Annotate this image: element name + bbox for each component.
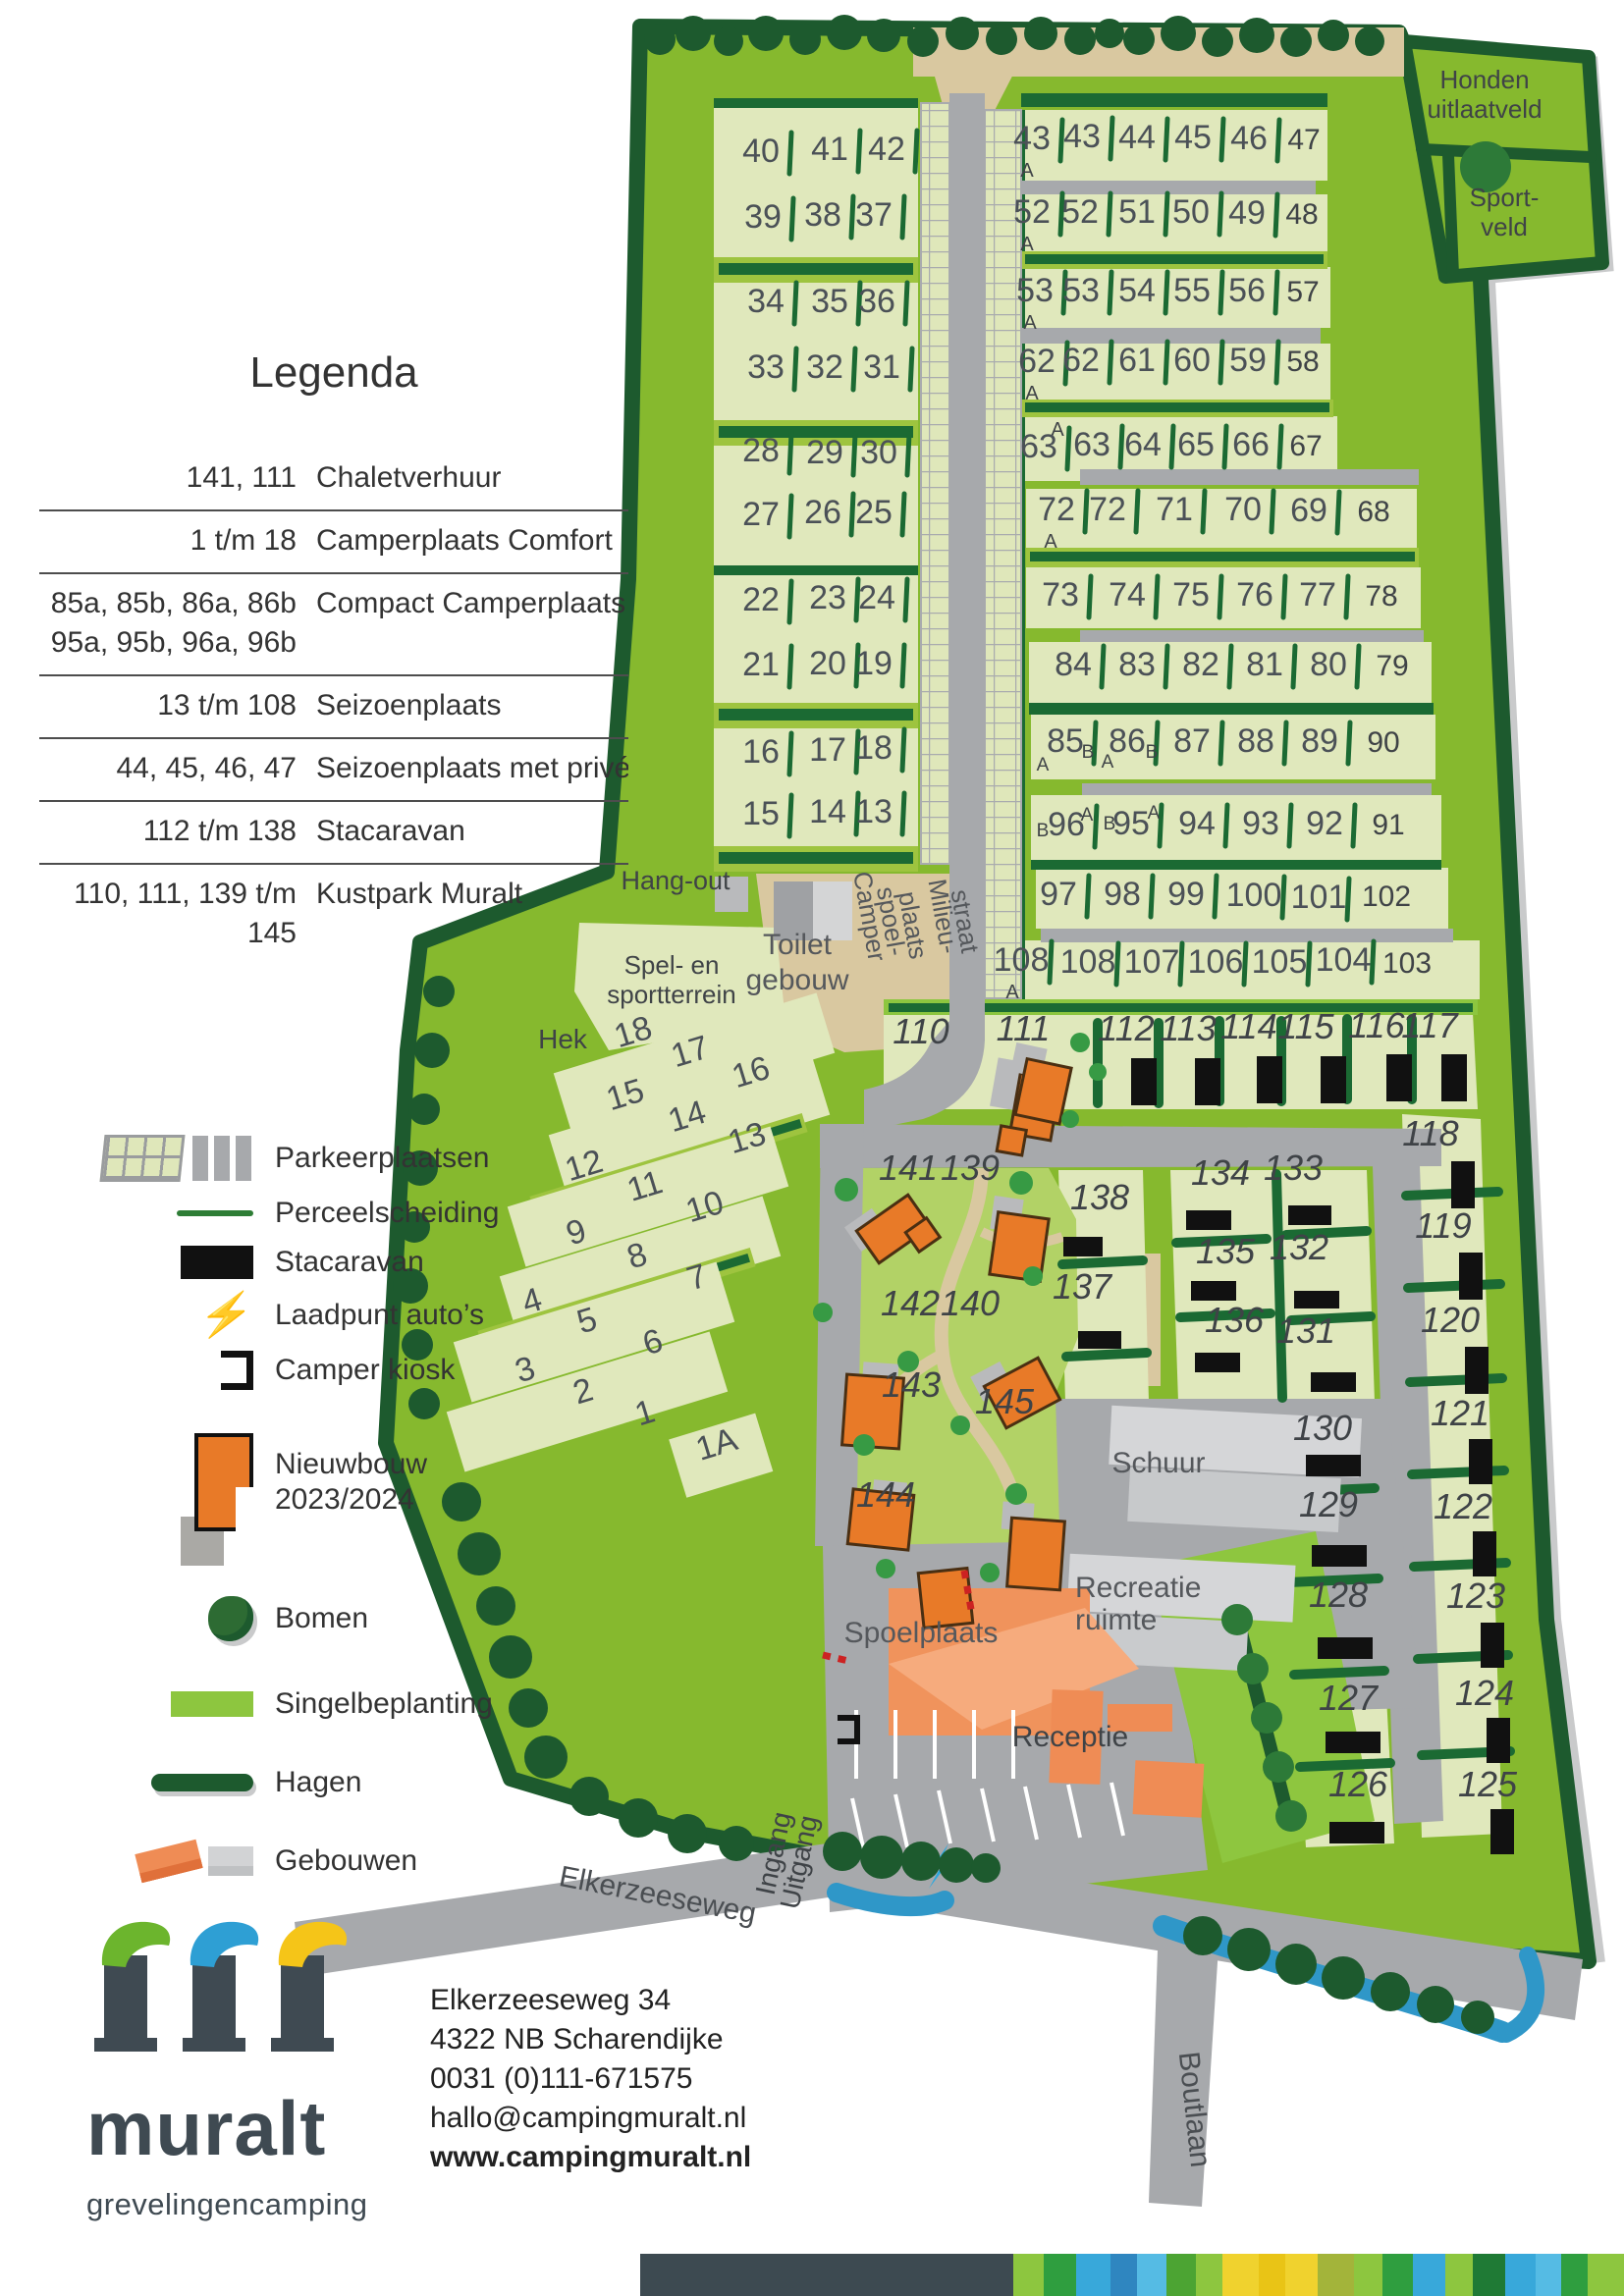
- perceel-divider: [902, 729, 904, 771]
- icon-legend-label: Bomen: [253, 1601, 368, 1636]
- map-label: sportterrein: [607, 980, 736, 1009]
- perceel-divider: [1136, 491, 1138, 532]
- tree-icon: [939, 1847, 974, 1883]
- map-label: A: [1023, 312, 1037, 334]
- tree-icon: [1227, 1928, 1271, 1971]
- plot-label: 43: [1013, 120, 1051, 157]
- plot-label: 112: [1098, 1008, 1154, 1048]
- legend-label: Camperplaats Comfort: [297, 521, 613, 561]
- plot-label: 135: [1196, 1231, 1256, 1271]
- map-label: Schuur: [1111, 1447, 1205, 1479]
- tree-icon: [1461, 2001, 1494, 2034]
- perceel-divider: [902, 494, 904, 535]
- plot-label: 121: [1431, 1393, 1489, 1433]
- legend-row: 112 t/m 138Stacaravan: [39, 802, 628, 865]
- perceel-divider: [1244, 943, 1246, 985]
- icon-legend-item: Nieuwbouw2023/2024: [86, 1433, 636, 1531]
- tree-icon: [423, 976, 455, 1007]
- color-bar-segment: [1445, 2254, 1473, 2296]
- tree-icon: [676, 16, 711, 51]
- legend-row: 141, 111Chaletverhuur: [39, 449, 628, 511]
- plot-label: 93: [1242, 805, 1279, 842]
- plot-label: 69: [1290, 492, 1327, 529]
- map-label: 48: [1285, 198, 1318, 231]
- map-label: 103: [1382, 947, 1432, 980]
- tree-icon: [860, 1836, 903, 1879]
- map-label: veld: [1481, 212, 1528, 241]
- tree-icon: [1355, 27, 1384, 56]
- staca-icon: [86, 1246, 253, 1279]
- perceel-divider: [1220, 342, 1222, 383]
- plot-label: 128: [1309, 1575, 1368, 1615]
- bomen-icon: [86, 1596, 253, 1641]
- plot-label: 129: [1299, 1484, 1358, 1524]
- plot-label: 53: [1016, 272, 1054, 309]
- color-bar-segment: [1137, 2254, 1166, 2296]
- stacaravan: [1465, 1347, 1489, 1394]
- perceel-divider: [1276, 342, 1278, 383]
- perceel-divider: [789, 646, 791, 687]
- map-label: A: [1020, 160, 1034, 182]
- stacaravan: [1186, 1210, 1231, 1230]
- tree-icon: [986, 24, 1017, 55]
- perceel-divider: [1348, 722, 1350, 764]
- map-label: 90: [1367, 726, 1399, 759]
- stacaravan: [1473, 1531, 1496, 1576]
- icon-legend-label: Stacaravan: [253, 1245, 424, 1280]
- legend-label: Kustpark Muralt: [297, 875, 522, 914]
- color-bar-segment: [1044, 2254, 1076, 2296]
- map-label: A: [1025, 383, 1039, 404]
- tree-icon: [876, 1559, 895, 1578]
- plot-label: 108: [994, 941, 1050, 979]
- plot-label: 22: [742, 581, 780, 618]
- icon-legend-item: Hagen: [86, 1765, 636, 1800]
- plot-label: 86: [1109, 722, 1146, 760]
- perceel-divider: [789, 795, 791, 836]
- map-label: Hek: [538, 1024, 588, 1054]
- perceel-divider: [1337, 492, 1339, 533]
- plot-label: 99: [1167, 876, 1205, 913]
- icon-legend-label: Nieuwbouw2023/2024: [253, 1447, 427, 1518]
- contact-line: Elkerzeeseweg 34: [430, 1981, 751, 2020]
- tree-icon: [1221, 1604, 1253, 1635]
- map-label: 91: [1372, 809, 1404, 841]
- stacaravan: [1078, 1331, 1121, 1349]
- tree-icon: [1023, 1266, 1043, 1286]
- stacaravan: [1063, 1237, 1103, 1256]
- plot-label: 25: [855, 494, 893, 531]
- plot-label: 104: [1316, 941, 1372, 979]
- plot-label: 125: [1458, 1764, 1518, 1804]
- nieuwbouw-icon: [86, 1433, 253, 1531]
- color-bar-segment: [1110, 2254, 1138, 2296]
- tree-icon: [1263, 1751, 1294, 1783]
- perceel-divider: [1289, 805, 1291, 846]
- map-label: A: [1081, 805, 1094, 826]
- tree-icon: [907, 26, 939, 57]
- plot-label: 14: [809, 793, 846, 830]
- plot-label: 92: [1306, 805, 1343, 842]
- map-label: B: [1082, 742, 1095, 763]
- map-label: gebouw: [745, 964, 848, 996]
- plot-label: 29: [806, 434, 843, 471]
- icon-legend-item: Singelbeplanting: [86, 1686, 636, 1722]
- perceel-divider: [902, 793, 904, 834]
- perceel-divider: [910, 348, 912, 390]
- legend-row: 110, 111, 139 t/m 145Kustpark Muralt: [39, 865, 628, 965]
- plot-label: 84: [1055, 646, 1092, 683]
- plot-label: 88: [1237, 722, 1274, 760]
- perceel-icon: [86, 1210, 253, 1216]
- legend-title: Legenda: [39, 348, 628, 398]
- color-bar-segment: [1013, 2254, 1043, 2296]
- plot-label: 139: [941, 1148, 1000, 1188]
- icon-legend-item: Stacaravan: [86, 1245, 636, 1280]
- plot-label: 17: [809, 731, 846, 769]
- icon-legend-item: Parkeerplaatsen: [86, 1135, 636, 1182]
- plot-label: 115: [1277, 1006, 1334, 1046]
- plot-label: 32: [806, 348, 843, 386]
- stacaravan: [1312, 1545, 1367, 1567]
- plot-label: 77: [1299, 576, 1336, 614]
- plot-label: 136: [1205, 1300, 1265, 1340]
- perceel-divider: [1275, 272, 1277, 313]
- perceel-divider: [1060, 120, 1062, 161]
- plot-label: 87: [1173, 722, 1211, 760]
- plot-label: 75: [1172, 576, 1210, 614]
- plot-label: 140: [941, 1283, 1000, 1323]
- perceel-divider: [1165, 193, 1167, 235]
- plot-label: 20: [809, 645, 846, 682]
- plot-label: 73: [1042, 576, 1079, 614]
- brand-subtitle: grevelingencamping: [86, 2187, 410, 2222]
- perceel-divider: [1283, 576, 1285, 617]
- plot-label: 94: [1178, 805, 1216, 842]
- perceel-divider: [902, 196, 904, 238]
- tree-icon: [1318, 20, 1349, 51]
- logo-mark: [86, 1914, 381, 2071]
- perceel-divider: [1220, 272, 1222, 313]
- stacaravan: [1329, 1822, 1384, 1843]
- legend-label: Chaletverhuur: [297, 458, 501, 498]
- stacaravan: [1459, 1253, 1483, 1300]
- perceel-divider: [902, 645, 904, 686]
- plot-label: 143: [882, 1364, 941, 1405]
- perceel-divider: [1272, 491, 1273, 532]
- map-label: 57: [1286, 276, 1319, 308]
- hedge: [1448, 155, 1453, 275]
- tree-icon: [1275, 1800, 1307, 1832]
- plot-label: 50: [1172, 193, 1210, 231]
- icon-legend-item: Bomen: [86, 1596, 636, 1641]
- plot-label: 26: [804, 494, 841, 531]
- plot-label: 43: [1063, 118, 1101, 155]
- plot-label: 126: [1328, 1764, 1388, 1804]
- perceel-divider: [1156, 576, 1158, 617]
- perceel-divider: [1067, 428, 1069, 469]
- plot-label: 134: [1191, 1152, 1250, 1193]
- tree-icon: [827, 15, 862, 50]
- plot-label: 42: [868, 131, 905, 168]
- plot-label: 137: [1053, 1266, 1113, 1307]
- plot-label: 101: [1291, 879, 1347, 916]
- tree-icon: [789, 24, 821, 55]
- plot-label: 16: [742, 733, 780, 771]
- tree-icon: [714, 27, 743, 56]
- plot-label: 56: [1228, 272, 1266, 309]
- map-label: Recreatie: [1075, 1572, 1201, 1604]
- stacaravan: [1257, 1056, 1282, 1103]
- plot-label: 63: [1020, 428, 1057, 465]
- plot-label: 142: [881, 1283, 940, 1323]
- tree-icon: [1417, 1986, 1454, 2023]
- tree-icon: [414, 1033, 450, 1068]
- legend-row: 44, 45, 46, 47Seizoenplaats met privé sa…: [39, 739, 628, 802]
- orange-building: [1133, 1760, 1205, 1818]
- color-bar-segment: [1561, 2254, 1589, 2296]
- plot-label: 15: [742, 795, 780, 832]
- perceel-divider: [789, 133, 791, 174]
- tree-icon: [823, 1832, 862, 1871]
- map-label: 78: [1365, 580, 1397, 613]
- plot-label: 74: [1109, 576, 1146, 614]
- plot-label: 71: [1156, 491, 1193, 528]
- legend-label: Stacaravan: [297, 812, 465, 851]
- map-label: Receptie: [1012, 1721, 1128, 1753]
- tree-icon: [835, 1178, 858, 1201]
- contact-line: 0031 (0)111-671575: [430, 2059, 751, 2099]
- perceel-divider: [789, 432, 791, 473]
- tree-icon: [1024, 17, 1057, 50]
- plot-label: 122: [1434, 1486, 1492, 1526]
- plot-label: 38: [804, 196, 841, 234]
- plot-label: 18: [855, 729, 893, 767]
- plot-label: 51: [1118, 193, 1156, 231]
- icon-legend-label: Gebouwen: [253, 1843, 417, 1879]
- plot-label: 30: [860, 434, 897, 471]
- plot-label: 82: [1182, 646, 1219, 683]
- plot-label: 54: [1118, 272, 1156, 309]
- perceel-divider: [1110, 118, 1112, 159]
- map-label: 68: [1357, 496, 1389, 528]
- tree-icon: [950, 1415, 970, 1435]
- map-label: Honden: [1439, 65, 1529, 94]
- icon-legend-item: Gebouwen: [86, 1843, 636, 1879]
- tree-icon: [1275, 1944, 1317, 1985]
- plot-label: 130: [1293, 1408, 1352, 1448]
- icon-legend-label: Singelbeplanting: [253, 1686, 493, 1722]
- contact-line: www.campingmuralt.nl: [430, 2138, 751, 2177]
- map-label: A: [1020, 234, 1034, 255]
- perceel-divider: [1279, 426, 1281, 467]
- plot-label: 111: [997, 1008, 1051, 1048]
- color-bar-segment: [1076, 2254, 1110, 2296]
- icon-legend-label: Hagen: [253, 1765, 361, 1800]
- plot-label: 120: [1421, 1300, 1480, 1340]
- hagen-icon: [86, 1774, 253, 1791]
- map-label: Spoelplaats: [844, 1617, 999, 1649]
- perceel-divider: [1116, 943, 1118, 985]
- perceel-divider: [789, 496, 791, 537]
- perceel-divider: [905, 283, 907, 324]
- plot-label: 85: [1047, 722, 1084, 760]
- plot-label: 131: [1276, 1310, 1335, 1351]
- color-bar-segment: [1259, 2254, 1286, 2296]
- color-bar-segment: [1588, 2254, 1624, 2296]
- plot-label: 28: [742, 432, 780, 469]
- legend-row: 1 t/m 18Camperplaats Comfort: [39, 511, 628, 574]
- perceel-divider: [789, 733, 791, 774]
- plot-label: 41: [811, 131, 848, 168]
- plot-label: 23: [809, 579, 846, 616]
- plot-label: 116: [1348, 1005, 1405, 1045]
- perceel-divider: [1120, 426, 1122, 467]
- plot-label: 52: [1061, 193, 1099, 231]
- legend-label: Seizoenplaats: [297, 686, 501, 725]
- tree-icon: [1089, 1063, 1107, 1081]
- legend-codes: 44, 45, 46, 47: [39, 749, 297, 788]
- legend-codes: 13 t/m 108: [39, 686, 297, 725]
- perceel-divider: [1346, 576, 1348, 617]
- stacaravan: [1386, 1054, 1412, 1101]
- stacaravan: [1195, 1058, 1220, 1105]
- icon-legend-label: Camper kiosk: [253, 1353, 455, 1388]
- kiosk-icon: [86, 1351, 253, 1390]
- tree-icon: [1161, 16, 1196, 51]
- perceel-divider: [1275, 194, 1277, 236]
- plot-label: 72: [1089, 491, 1126, 528]
- tree-icon: [1322, 1956, 1365, 2000]
- plot-label: 39: [744, 198, 782, 236]
- plot-label: 62: [1018, 343, 1056, 380]
- plot-label: 123: [1446, 1575, 1505, 1616]
- map-label: A: [1037, 755, 1050, 775]
- plot-label: 117: [1401, 1005, 1459, 1045]
- perceel-divider: [905, 579, 907, 620]
- tree-icon: [668, 1814, 707, 1853]
- stacaravan: [1451, 1161, 1475, 1208]
- legend-codes: 110, 111, 139 t/m 145: [39, 875, 297, 953]
- plot-label: 132: [1270, 1227, 1328, 1267]
- tree-icon: [1239, 18, 1274, 53]
- tree-icon: [980, 1563, 1000, 1582]
- plot-label: 98: [1104, 876, 1141, 913]
- tree-icon: [1070, 1033, 1090, 1052]
- plot-label: 45: [1174, 119, 1212, 156]
- color-bar-segment: [1354, 2254, 1382, 2296]
- legend-rows: 141, 111Chaletverhuur1 t/m 18Camperplaat…: [39, 449, 628, 965]
- perceel-divider: [1050, 941, 1052, 983]
- perceel-divider: [1308, 943, 1310, 985]
- plot-label: 27: [742, 496, 780, 533]
- legend-row: 13 t/m 108Seizoenplaats: [39, 676, 628, 739]
- plot-label: 141: [879, 1148, 938, 1188]
- perceel-divider: [791, 198, 793, 240]
- map-label: A: [1044, 531, 1057, 553]
- contact-line: 4322 NB Scharendijke: [430, 2020, 751, 2059]
- plot-label: 44: [1118, 119, 1156, 156]
- perceel-divider: [1353, 805, 1355, 846]
- plot-label: 62: [1062, 342, 1100, 379]
- singel-icon: [86, 1691, 253, 1717]
- map-label: 102: [1362, 881, 1411, 913]
- stacaravan: [1288, 1205, 1331, 1225]
- tree-icon: [946, 17, 979, 50]
- perceel-divider: [853, 434, 855, 475]
- tree-icon: [1251, 1702, 1282, 1734]
- map-label: A: [1005, 982, 1019, 1003]
- icon-legend-label: Parkeerplaatsen: [253, 1141, 489, 1176]
- color-bar-segment: [1318, 2254, 1354, 2296]
- perceel-divider: [1220, 722, 1222, 764]
- plot-label: 36: [858, 283, 895, 320]
- perceel-divider: [1203, 491, 1205, 532]
- tree-icon: [1123, 24, 1155, 55]
- laad-icon: ⚡: [86, 1294, 253, 1337]
- legend-panel: Legenda 141, 111Chaletverhuur1 t/m 18Cam…: [39, 348, 628, 965]
- perceel-divider: [789, 581, 791, 622]
- perceel-divider: [1171, 426, 1173, 467]
- tree-icon: [1064, 24, 1096, 55]
- gebouwen-icon: [86, 1846, 253, 1876]
- color-bar-segment: [1505, 2254, 1536, 2296]
- stacaravan: [1481, 1623, 1504, 1668]
- tree-icon: [1237, 1653, 1269, 1684]
- perceel-divider: [1284, 722, 1286, 764]
- stacaravan: [1191, 1281, 1236, 1301]
- stacaravan: [1306, 1455, 1361, 1476]
- perceel-divider: [1095, 806, 1097, 847]
- legend-codes: 85a, 85b, 86a, 86b95a, 95b, 96a, 96b: [39, 584, 297, 663]
- plot-label: 66: [1232, 426, 1270, 463]
- plot-label: 97: [1040, 876, 1077, 913]
- tree-icon: [971, 1853, 1001, 1883]
- stacaravan: [1490, 1809, 1514, 1854]
- perceel-divider: [915, 131, 917, 172]
- color-bar-segment: [640, 2254, 1013, 2296]
- plot-label: 119: [1415, 1205, 1471, 1246]
- stacaravan: [1294, 1291, 1339, 1308]
- perceel-divider: [1165, 342, 1167, 383]
- logo-pillars: [94, 1922, 347, 2052]
- plot-label: 70: [1224, 491, 1262, 528]
- plot-label: 81: [1246, 646, 1283, 683]
- plot-label: 145: [975, 1381, 1035, 1421]
- plot-label: 21: [742, 646, 780, 683]
- map-label: Spel- en: [624, 950, 720, 980]
- plot-label: 59: [1229, 342, 1267, 379]
- tree-icon: [719, 1826, 754, 1861]
- perceel-divider: [1347, 879, 1349, 920]
- plot-label: 53: [1062, 272, 1100, 309]
- icon-legend-item: ⚡Laadpunt auto’s: [86, 1294, 636, 1337]
- plot-label: 114: [1220, 1006, 1276, 1046]
- tree-icon: [1095, 19, 1124, 48]
- stacaravan: [1326, 1732, 1380, 1753]
- plot-label: 64: [1124, 426, 1162, 463]
- stacaravan: [1311, 1372, 1356, 1392]
- map-label: 47: [1287, 124, 1320, 156]
- stacaravan: [1469, 1439, 1492, 1484]
- tree-icon: [748, 16, 784, 51]
- perceel-divider: [1110, 342, 1111, 383]
- plot-label: 133: [1264, 1148, 1323, 1188]
- parkeer-icon: [86, 1135, 253, 1182]
- contact-line: hallo@campingmuralt.nl: [430, 2099, 751, 2138]
- perceel-divider: [1219, 576, 1221, 617]
- contact-info: Elkerzeeseweg 344322 NB Scharendijke0031…: [430, 1981, 751, 2177]
